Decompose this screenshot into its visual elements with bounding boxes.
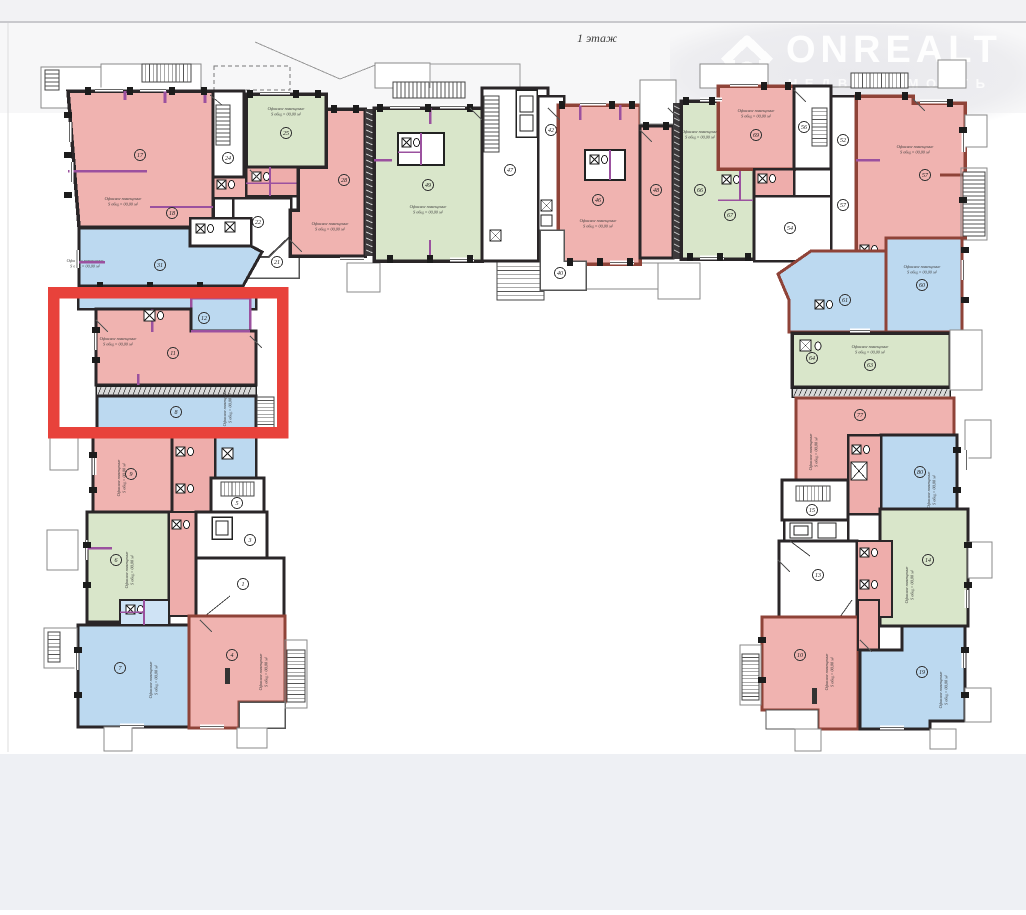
svg-text:Офисное помещение: Офисное помещение	[897, 144, 934, 149]
svg-text:Офисное помещение: Офисное помещение	[268, 106, 305, 111]
svg-text:22: 22	[255, 220, 261, 226]
svg-text:57: 57	[922, 173, 929, 179]
svg-text:8: 8	[175, 410, 178, 416]
svg-text:ONREALT: ONREALT	[786, 29, 1002, 71]
svg-text:18: 18	[169, 211, 175, 217]
svg-text:Офисное помещение: Офисное помещение	[904, 566, 909, 603]
svg-text:52: 52	[840, 138, 846, 144]
svg-text:13: 13	[815, 573, 821, 579]
svg-text:3: 3	[248, 538, 252, 544]
svg-text:12: 12	[201, 316, 207, 322]
svg-text:5: 5	[236, 501, 239, 507]
svg-text:66: 66	[697, 188, 703, 194]
svg-text:28: 28	[341, 178, 347, 184]
svg-text:54: 54	[787, 225, 793, 232]
svg-text:21: 21	[274, 260, 280, 266]
svg-text:4: 4	[231, 652, 234, 659]
svg-text:80: 80	[917, 470, 923, 476]
svg-text:1: 1	[242, 582, 245, 588]
svg-text:Офисное помещение: Офисное помещение	[124, 551, 129, 588]
svg-text:14: 14	[925, 557, 931, 564]
svg-text:6: 6	[115, 558, 118, 564]
svg-text:Офисное помещение: Офисное помещение	[682, 129, 719, 134]
svg-text:25: 25	[283, 131, 289, 137]
svg-text:17: 17	[137, 153, 144, 159]
svg-text:67: 67	[727, 213, 734, 219]
svg-text:42: 42	[548, 127, 554, 134]
svg-text:Офисное помещение: Офисное помещение	[258, 653, 263, 690]
svg-text:64: 64	[809, 355, 815, 362]
svg-text:Офисное помещение: Офисное помещение	[222, 389, 227, 426]
svg-text:Офисное помещение: Офисное помещение	[938, 671, 943, 708]
svg-text:15: 15	[809, 508, 815, 514]
svg-text:49: 49	[425, 182, 431, 189]
svg-text:46: 46	[595, 197, 601, 204]
svg-text:48: 48	[653, 187, 659, 194]
svg-text:9: 9	[130, 472, 133, 478]
svg-text:60: 60	[919, 283, 925, 289]
svg-text:Офисное помещение: Офисное помещение	[852, 344, 889, 349]
svg-text:Офисное помещение: Офисное помещение	[410, 204, 447, 209]
svg-text:Офисное помещение: Офисное помещение	[824, 653, 829, 690]
svg-text:69: 69	[753, 133, 759, 139]
svg-text:77: 77	[857, 413, 864, 419]
svg-text:Офисное помещение: Офисное помещение	[312, 221, 349, 226]
svg-text:Офисное помещение: Офисное помещение	[808, 433, 813, 470]
svg-text:Офисное помещение: Офисное помещение	[580, 218, 617, 223]
svg-text:19: 19	[919, 670, 925, 676]
svg-text:Офисное помещение: Офисное помещение	[116, 459, 121, 496]
svg-text:10: 10	[797, 653, 803, 659]
svg-text:24: 24	[225, 155, 231, 162]
svg-text:Офисное помещение: Офисное помещение	[926, 471, 931, 508]
svg-text:Офисное помещение: Офисное помещение	[148, 661, 153, 698]
svg-text:Офисное помещение: Офисное помещение	[100, 336, 137, 341]
svg-text:Офисное помещение: Офисное помещение	[904, 264, 941, 269]
svg-text:11: 11	[170, 351, 176, 357]
svg-text:61: 61	[842, 298, 848, 304]
svg-text:63: 63	[867, 363, 873, 369]
svg-text:57: 57	[840, 203, 847, 209]
svg-text:Офисное помещение: Офисное помещение	[105, 196, 142, 201]
svg-text:1 этаж: 1 этаж	[577, 31, 617, 45]
svg-text:31: 31	[156, 263, 163, 269]
svg-text:47: 47	[507, 167, 514, 174]
svg-text:56: 56	[801, 125, 807, 131]
svg-text:40: 40	[557, 270, 563, 277]
svg-text:Офисное помещение: Офисное помещение	[738, 108, 775, 113]
